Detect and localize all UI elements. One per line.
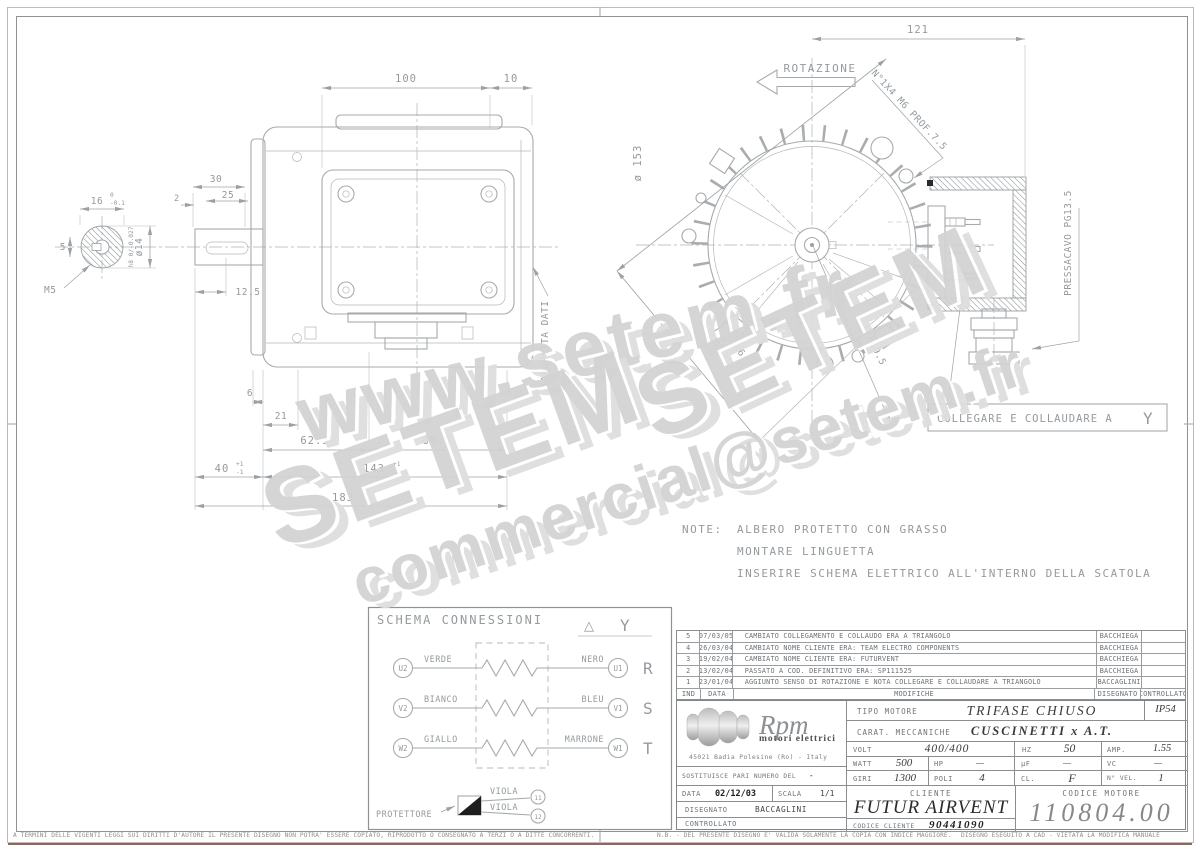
date-value: 02/12/03 bbox=[715, 789, 756, 799]
wire-color: BLEU bbox=[582, 695, 604, 705]
vc-value: — bbox=[1141, 758, 1175, 768]
logo-box: Rpm motori elettrici 45021 Badia Polesin… bbox=[677, 701, 847, 767]
gland-label: PRESSACAVO PG13.5 bbox=[1063, 190, 1074, 296]
wire-color: VIOLA bbox=[490, 787, 518, 797]
field-label: AMP. bbox=[1107, 746, 1126, 754]
terminal-v2: V2 bbox=[398, 704, 407, 713]
field-label: CL. bbox=[1021, 775, 1035, 783]
field-label: WATT bbox=[853, 760, 872, 768]
field-label: N° VEL. bbox=[1107, 775, 1137, 782]
dim-100: 100 bbox=[395, 73, 417, 85]
dim-10: 10 bbox=[504, 73, 519, 85]
drafter-value: BACCAGLINI bbox=[755, 805, 807, 814]
field-label: CARAT. MECCANICHE bbox=[857, 728, 951, 737]
terminal-12: 12 bbox=[534, 814, 542, 821]
terminal-studs bbox=[888, 206, 980, 298]
note-line: MONTARE LINGUETTA bbox=[737, 545, 875, 558]
col-header-ind: IND bbox=[677, 689, 701, 700]
thermal-protector: PROTETTORE VIOLA VIOLA 11 12 bbox=[376, 787, 545, 823]
dim-143: 143 bbox=[363, 463, 385, 475]
thread-label: M5 bbox=[44, 285, 56, 296]
connection-schema: SCHEMA CONNESSIONI △ Y U2 VERDE NERO U1 … bbox=[369, 608, 672, 830]
rev-text: CAMBIATO COLLEGAMENTO E COLLAUDO ERA A T… bbox=[733, 631, 1097, 642]
rev-date: 13/02/04 bbox=[700, 666, 732, 677]
field-label: VOLT bbox=[853, 746, 872, 754]
logo-subtitle: motori elettrici bbox=[759, 734, 836, 744]
carat-row: CARAT. MECCANICHE CUSCINETTI x A.T. bbox=[847, 721, 1187, 742]
delta-symbol: △ bbox=[584, 619, 594, 634]
customer-value: FUTUR AIRVENT bbox=[847, 797, 1015, 819]
field-label: TIPO MOTORE bbox=[857, 707, 918, 716]
poles-value: 4 bbox=[967, 772, 997, 784]
rev-checked bbox=[1142, 654, 1185, 665]
dim-16: 16 bbox=[91, 196, 103, 207]
dim-40-tol-bot: -1 bbox=[236, 469, 244, 476]
shaft-end-detail: 16 0 -0.1 5 M5 ø14 h8 0/-0.027 bbox=[44, 192, 558, 296]
motor-side-view: 100 10 30 2 25 12.5 6 21 6 bbox=[174, 73, 551, 510]
rev-date: 26/03/04 bbox=[700, 643, 732, 654]
field-label: SCALA bbox=[778, 790, 802, 798]
col-header-modifiche: MODIFICHE bbox=[734, 689, 1095, 700]
rev-date: 07/03/05 bbox=[700, 631, 732, 642]
motor-front-view: ø 153 146 R69.5 121 ROTAZIONE N°1X4 M6 P… bbox=[617, 24, 1167, 441]
rev-date: 19/02/04 bbox=[700, 654, 732, 665]
nameplate-label: TARGHETTA DATI bbox=[540, 300, 551, 387]
rev-author: BACCHIEGA bbox=[1097, 654, 1142, 665]
rev-checked bbox=[1142, 631, 1185, 642]
terminal-w2: W2 bbox=[398, 744, 407, 753]
terminal-w1: W1 bbox=[613, 744, 622, 753]
rev-checked bbox=[1142, 666, 1185, 677]
rev-index: 4 bbox=[677, 643, 700, 654]
col-header-data: DATA bbox=[701, 689, 734, 700]
field-label: CONTROLLATO bbox=[685, 820, 737, 828]
motor-type-value: TRIFASE CHIUSO bbox=[937, 703, 1127, 719]
rev-index: 1 bbox=[677, 677, 700, 688]
hp-value: — bbox=[963, 758, 997, 768]
amp-value: 1.55 bbox=[1141, 743, 1183, 754]
drawing-sheet: 16 0 -0.1 5 M5 ø14 h8 0/-0.027 bbox=[0, 0, 1200, 848]
field-label: CODICE MOTORE bbox=[1016, 789, 1187, 798]
rev-index: 3 bbox=[677, 654, 700, 665]
dim-16-tol-top: 0 bbox=[110, 192, 114, 199]
customer-code-value: 90441090 bbox=[929, 819, 985, 831]
phase-s: S bbox=[643, 699, 654, 718]
terminal-u2: U2 bbox=[398, 664, 407, 673]
motor-code-value: 110804.00 bbox=[1016, 798, 1187, 828]
rev-text: CAMBIATO NOME CLIENTE ERA: TEAM ELECTRO … bbox=[733, 643, 1097, 654]
dim-121: 121 bbox=[907, 24, 929, 36]
field-label: SOSTITUISCE PARI NUMERO DEL bbox=[682, 773, 796, 780]
watt-value: 500 bbox=[883, 757, 925, 769]
rev-author: BACCHIEGA bbox=[1097, 631, 1142, 642]
codice-motore-box: CODICE MOTORE 110804.00 bbox=[1016, 786, 1187, 831]
sostituisce-row: SOSTITUISCE PARI NUMERO DEL - bbox=[677, 767, 847, 786]
rotation-label: ROTAZIONE bbox=[783, 62, 856, 75]
dim-40: 40 bbox=[215, 463, 230, 475]
terminal-11: 11 bbox=[534, 795, 542, 802]
dim-146: 146 bbox=[727, 338, 747, 359]
footer-legal-mid: N.B. - DEL PRESENTE DISEGNO E' VALIDA SO… bbox=[657, 832, 952, 839]
table-row: 2 13/02/04 PASSATO A COD. DEFINITIVO ERA… bbox=[677, 666, 1185, 678]
rev-text: CAMBIATO NOME CLIENTE ERA: FUTURVENT bbox=[733, 654, 1097, 665]
dim-30: 30 bbox=[210, 174, 222, 185]
field-label: POLI bbox=[934, 775, 953, 783]
dim-d14: ø14 bbox=[134, 238, 145, 257]
table-row: 1 23/01/04 AGGIUNTO SENSO DI ROTAZIONE E… bbox=[677, 677, 1185, 689]
table-row: 5 07/03/05 CAMBIATO COLLEGAMENTO E COLLA… bbox=[677, 631, 1185, 643]
scale-value: 1/1 bbox=[820, 789, 834, 798]
wire-color: MARRONE bbox=[565, 735, 604, 745]
dim-183: 183 bbox=[332, 492, 354, 504]
dim-6: 6 bbox=[247, 388, 253, 399]
terminal-v1: V1 bbox=[613, 704, 622, 713]
phase-t: T bbox=[643, 739, 654, 758]
rev-author: BACCAGLINI bbox=[1097, 677, 1142, 688]
rev-date: 23/01/04 bbox=[700, 677, 732, 688]
note-line: ALBERO PROTETTO CON GRASSO bbox=[737, 523, 948, 536]
rev-author: BACCHIEGA bbox=[1097, 666, 1142, 677]
dim-12-5: 12.5 bbox=[236, 287, 261, 298]
dim-d153: ø 153 bbox=[632, 145, 644, 182]
col-header-disegnato: DISEGNATO bbox=[1095, 689, 1141, 700]
dim-21: 21 bbox=[275, 411, 287, 422]
title-block: Rpm motori elettrici 45021 Badia Polesin… bbox=[676, 700, 1186, 830]
wire-color: NERO bbox=[582, 655, 604, 665]
dim-143-tol-top: +1 bbox=[393, 461, 401, 468]
controllato-row: CONTROLLATO bbox=[677, 818, 847, 831]
footer-legal-right: DISEGNO ESEGUITO A CAD - VIETATA LA MODI… bbox=[961, 832, 1160, 839]
note-label: NOTE: bbox=[682, 523, 723, 536]
connect-note: COLLEGARE E COLLAUDARE A bbox=[937, 413, 1113, 425]
dim-183-tol-top: +2 bbox=[362, 490, 370, 497]
watt-row: WATT 500 HP — µF — VC — bbox=[847, 757, 1187, 771]
cliente-box: CLIENTE FUTUR AIRVENT CODICE CLIENTE 904… bbox=[847, 786, 1016, 831]
field-label: DISEGNATO bbox=[685, 806, 727, 814]
dim-25: 25 bbox=[222, 190, 234, 201]
field-label: CODICE CLIENTE bbox=[853, 822, 915, 830]
wire-color: BIANCO bbox=[424, 695, 458, 705]
dim-5: 5 bbox=[60, 242, 66, 253]
rev-author: BACCHIEGA bbox=[1097, 643, 1142, 654]
rev-checked bbox=[1142, 677, 1185, 688]
terminal-u1: U1 bbox=[613, 664, 622, 673]
schema-row: W2 GIALLO MARRONE W1 T bbox=[394, 735, 654, 758]
field-label: DATA bbox=[682, 790, 701, 798]
note-block: NOTE: ALBERO PROTETTO CON GRASSO MONTARE… bbox=[682, 523, 1151, 580]
speeds-value: 1 bbox=[1147, 772, 1175, 784]
dim-2: 2 bbox=[174, 194, 180, 204]
wire-color: GIALLO bbox=[424, 735, 458, 745]
rev-checked bbox=[1142, 643, 1185, 654]
wye-symbol: Y bbox=[1143, 409, 1154, 428]
phase-r: R bbox=[643, 659, 654, 678]
dim-d14-fit: h8 0/-0.027 bbox=[128, 226, 135, 267]
logo-address: 45021 Badia Polesine (Ro) - Italy bbox=[689, 754, 827, 761]
sheet-bottom-rule bbox=[8, 843, 1192, 845]
field-label: VC bbox=[1107, 760, 1116, 768]
field-label: µF bbox=[1021, 760, 1030, 768]
protector-label: PROTETTORE bbox=[376, 810, 432, 820]
keyway bbox=[92, 244, 101, 251]
col-header-controllato: CONTROLLATO bbox=[1141, 689, 1185, 700]
mech-char-value: CUSCINETTI x A.T. bbox=[952, 724, 1132, 739]
footer-legal-left: A TERMINI DELLE VIGENTI LEGGI SUI DIRITT… bbox=[13, 832, 594, 839]
table-header-row: IND DATA MODIFICHE DISEGNATO CONTROLLATO bbox=[677, 689, 1185, 700]
rev-text: AGGIUNTO SENSO DI ROTAZIONE E NOTA COLLE… bbox=[733, 677, 1097, 688]
volt-row: VOLT 400/400 HZ 50 AMP. 1.55 bbox=[847, 742, 1187, 757]
dim-40-tol-top: +1 bbox=[236, 461, 244, 468]
schema-row: V2 BIANCO BLEU V1 S bbox=[394, 695, 654, 718]
dim-80-5: 80.5 bbox=[422, 435, 451, 447]
uf-value: — bbox=[1050, 758, 1084, 768]
ip-rating-value: IP54 bbox=[1144, 704, 1187, 715]
giri-row: GIRI 1300 POLI 4 CL. F N° VEL. 1 bbox=[847, 771, 1187, 786]
volt-value: 400/400 bbox=[887, 743, 1007, 755]
wire-color: VIOLA bbox=[490, 803, 518, 813]
protector-symbol bbox=[458, 796, 481, 815]
table-row: 3 19/02/04 CAMBIATO NOME CLIENTE ERA: FU… bbox=[677, 654, 1185, 666]
field-label: HP bbox=[934, 760, 943, 768]
hz-value: 50 bbox=[1047, 743, 1092, 755]
dim-143-tol-bot: -1 bbox=[393, 469, 401, 476]
rev-text: PASSATO A COD. DEFINITIVO ERA: SP111525 bbox=[733, 666, 1097, 677]
table-row: 4 26/03/04 CAMBIATO NOME CLIENTE ERA: TE… bbox=[677, 643, 1185, 655]
field-label: HZ bbox=[1022, 746, 1031, 754]
rev-index: 5 bbox=[677, 631, 700, 642]
note-line: INSERIRE SCHEMA ELETTRICO ALL'INTERNO DE… bbox=[737, 567, 1151, 580]
field-value: - bbox=[809, 771, 814, 781]
disegnato-row: DISEGNATO BACCAGLINI bbox=[677, 802, 847, 818]
class-value: F bbox=[1055, 771, 1089, 786]
wye-symbol: Y bbox=[620, 616, 631, 635]
dim-183-tol-bot: -2 bbox=[362, 498, 370, 505]
schema-title: SCHEMA CONNESSIONI bbox=[377, 613, 543, 627]
data-scala-row: DATA 02/12/03 SCALA 1/1 bbox=[677, 786, 847, 802]
tipo-motore-row: TIPO MOTORE TRIFASE CHIUSO IP54 bbox=[847, 701, 1187, 721]
rpm-value: 1300 bbox=[881, 772, 929, 784]
revision-table: 5 07/03/05 CAMBIATO COLLEGAMENTO E COLLA… bbox=[676, 630, 1186, 700]
field-label: GIRI bbox=[853, 775, 872, 783]
dim-16-tol-bot: -0.1 bbox=[110, 200, 125, 207]
dim-62-5: 62.5 bbox=[300, 435, 329, 447]
wire-color: VERDE bbox=[424, 655, 452, 665]
schema-row: U2 VERDE NERO U1 R bbox=[394, 655, 654, 678]
rev-index: 2 bbox=[677, 666, 700, 677]
